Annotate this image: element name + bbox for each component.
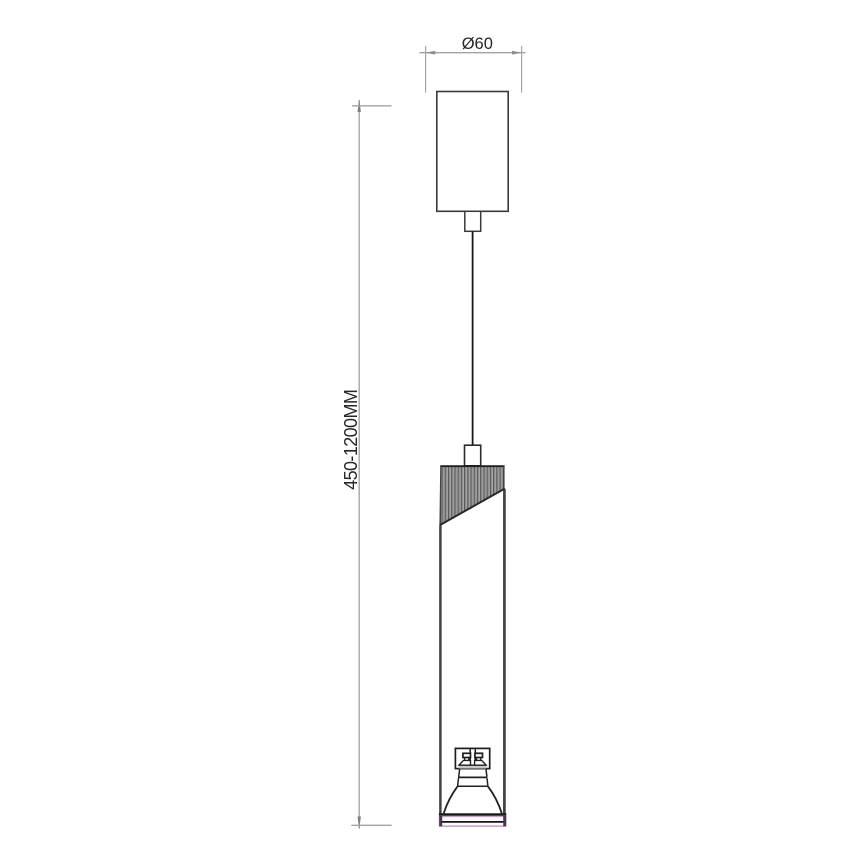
svg-text:450-1200MM: 450-1200MM <box>341 390 361 490</box>
svg-text:Ø60: Ø60 <box>462 35 493 53</box>
